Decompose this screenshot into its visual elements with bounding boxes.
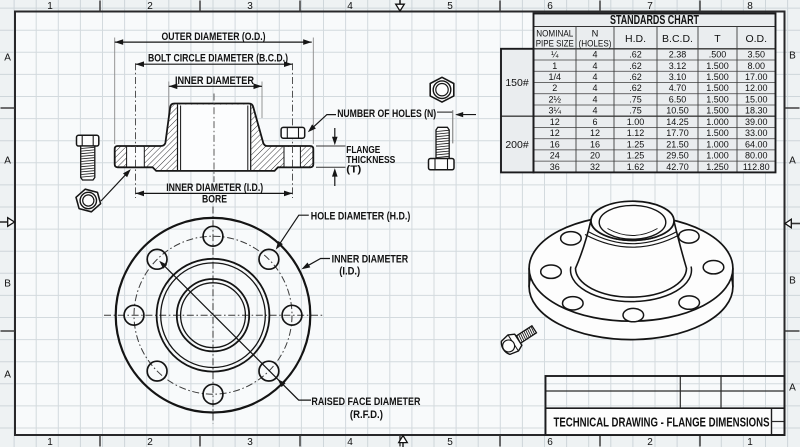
- svg-text:4: 4: [347, 437, 353, 447]
- svg-text:1: 1: [47, 1, 53, 12]
- svg-text:A: A: [4, 370, 11, 381]
- svg-text:1.62: 1.62: [627, 162, 645, 172]
- svg-text:¼: ¼: [551, 50, 559, 60]
- svg-text:4: 4: [592, 94, 597, 104]
- svg-text:15.00: 15.00: [745, 94, 768, 104]
- svg-text:.500: .500: [709, 50, 727, 60]
- svg-text:1: 1: [747, 437, 753, 447]
- svg-text:4: 4: [592, 72, 597, 82]
- svg-text:3.50: 3.50: [747, 50, 765, 60]
- svg-text:200#: 200#: [505, 139, 529, 151]
- svg-text:A: A: [4, 53, 11, 64]
- svg-text:H.D.: H.D.: [625, 33, 646, 45]
- svg-text:(HOLES): (HOLES): [579, 38, 612, 48]
- svg-text:.62: .62: [629, 50, 642, 60]
- svg-text:BOLT CIRCLE DIAMETER (B.C.D.): BOLT CIRCLE DIAMETER (B.C.D.): [148, 52, 288, 64]
- svg-text:39.00: 39.00: [745, 117, 768, 127]
- svg-text:3¼: 3¼: [548, 106, 561, 116]
- svg-text:3: 3: [247, 1, 253, 12]
- svg-text:17.70: 17.70: [666, 128, 689, 138]
- svg-text:1.500: 1.500: [706, 106, 729, 116]
- svg-text:RAISED FACE DIAMETER: RAISED FACE DIAMETER: [311, 396, 420, 408]
- svg-text:1.12: 1.12: [627, 128, 645, 138]
- svg-text:4.70: 4.70: [669, 83, 687, 93]
- svg-text:.62: .62: [629, 83, 642, 93]
- svg-text:17.00: 17.00: [745, 72, 768, 82]
- svg-text:(T): (T): [346, 164, 361, 176]
- svg-text:A: A: [4, 156, 11, 167]
- svg-text:1: 1: [552, 61, 557, 71]
- svg-text:NOMINAL: NOMINAL: [536, 29, 573, 39]
- svg-text:12.00: 12.00: [745, 83, 768, 93]
- svg-text:1.000: 1.000: [706, 151, 729, 161]
- svg-text:HOLE DIAMETER (H.D.): HOLE DIAMETER (H.D.): [311, 211, 411, 223]
- svg-text:2: 2: [147, 1, 153, 12]
- svg-text:INNER DIAMETER (I.D.): INNER DIAMETER (I.D.): [166, 182, 263, 194]
- svg-text:18.30: 18.30: [745, 106, 768, 116]
- svg-text:B: B: [789, 51, 796, 62]
- svg-text:12: 12: [590, 128, 600, 138]
- svg-text:112.80: 112.80: [743, 162, 770, 172]
- svg-text:4: 4: [592, 61, 597, 71]
- svg-text:3.12: 3.12: [669, 61, 687, 71]
- svg-text:3: 3: [247, 437, 253, 447]
- svg-text:8: 8: [747, 1, 753, 12]
- svg-text:5: 5: [447, 1, 453, 12]
- svg-text:1.25: 1.25: [627, 139, 645, 149]
- svg-text:(R.F.D.): (R.F.D.): [350, 409, 383, 421]
- svg-text:4: 4: [592, 83, 597, 93]
- svg-text:24: 24: [550, 151, 560, 161]
- svg-text:2: 2: [647, 437, 653, 447]
- svg-text:A: A: [789, 156, 796, 167]
- svg-text:1.25: 1.25: [627, 151, 645, 161]
- svg-text:.75: .75: [629, 106, 642, 116]
- svg-text:10.50: 10.50: [666, 106, 689, 116]
- svg-text:.62: .62: [629, 72, 642, 82]
- svg-text:B: B: [4, 279, 11, 290]
- svg-text:1.250: 1.250: [706, 162, 729, 172]
- svg-text:6: 6: [592, 117, 597, 127]
- svg-text:36: 36: [550, 162, 560, 172]
- svg-text:150#: 150#: [505, 77, 529, 89]
- svg-text:1.500: 1.500: [706, 94, 729, 104]
- svg-text:8.00: 8.00: [747, 61, 765, 71]
- svg-text:1.500: 1.500: [706, 61, 729, 71]
- svg-text:.75: .75: [629, 94, 642, 104]
- svg-text:64.00: 64.00: [745, 139, 768, 149]
- svg-text:5: 5: [447, 437, 453, 447]
- svg-text:1/4: 1/4: [548, 72, 561, 82]
- svg-text:14.25: 14.25: [666, 117, 689, 127]
- svg-text:1.000: 1.000: [706, 139, 729, 149]
- svg-text:T: T: [714, 33, 721, 45]
- svg-text:PIPE SIZE: PIPE SIZE: [536, 38, 574, 48]
- svg-text:4: 4: [347, 1, 353, 12]
- svg-text:29.50: 29.50: [666, 151, 689, 161]
- svg-text:1.500: 1.500: [706, 83, 729, 93]
- svg-text:80.00: 80.00: [745, 151, 768, 161]
- svg-text:OUTER DIAMETER (O.D.): OUTER DIAMETER (O.D.): [162, 31, 266, 43]
- svg-text:3.10: 3.10: [669, 72, 687, 82]
- svg-text:STANDARDS CHART: STANDARDS CHART: [610, 12, 699, 27]
- svg-text:BORE: BORE: [202, 194, 227, 206]
- svg-text:2: 2: [147, 437, 153, 447]
- svg-text:4: 4: [592, 106, 597, 116]
- svg-text:7: 7: [647, 1, 653, 12]
- svg-text:1: 1: [47, 437, 53, 447]
- svg-text:4: 4: [592, 50, 597, 60]
- svg-text:INNER DIAMETER: INNER DIAMETER: [175, 75, 254, 87]
- svg-text:16: 16: [550, 139, 560, 149]
- svg-text:A: A: [789, 383, 796, 394]
- svg-text:6.50: 6.50: [669, 94, 687, 104]
- svg-text:33.00: 33.00: [745, 128, 768, 138]
- svg-text:TECHNICAL DRAWING - FLANGE DIM: TECHNICAL DRAWING - FLANGE DIMENSIONS: [554, 414, 770, 429]
- svg-text:6: 6: [547, 437, 553, 447]
- svg-text:2½: 2½: [548, 94, 561, 104]
- svg-text:21.50: 21.50: [666, 139, 689, 149]
- svg-text:12: 12: [550, 117, 560, 127]
- svg-text:O.D.: O.D.: [745, 33, 767, 45]
- svg-text:N: N: [592, 29, 599, 39]
- svg-text:2: 2: [552, 83, 557, 93]
- svg-text:B.C.D.: B.C.D.: [662, 33, 693, 45]
- svg-text:INNER DIAMETER: INNER DIAMETER: [332, 253, 409, 265]
- svg-text:12: 12: [550, 128, 560, 138]
- svg-text:1.500: 1.500: [706, 128, 729, 138]
- svg-text:16: 16: [590, 139, 600, 149]
- svg-text:32: 32: [590, 162, 600, 172]
- svg-text:.62: .62: [629, 61, 642, 71]
- svg-text:1.000: 1.000: [706, 117, 729, 127]
- svg-text:(I.D.): (I.D.): [339, 265, 360, 277]
- svg-text:1.00: 1.00: [627, 117, 645, 127]
- svg-text:6: 6: [547, 1, 553, 12]
- svg-text:2.38: 2.38: [669, 50, 687, 60]
- svg-text:B: B: [789, 276, 796, 287]
- svg-text:42.70: 42.70: [666, 162, 689, 172]
- svg-text:NUMBER OF HOLES (N): NUMBER OF HOLES (N): [337, 108, 436, 120]
- svg-text:1.500: 1.500: [706, 72, 729, 82]
- svg-text:20: 20: [590, 151, 600, 161]
